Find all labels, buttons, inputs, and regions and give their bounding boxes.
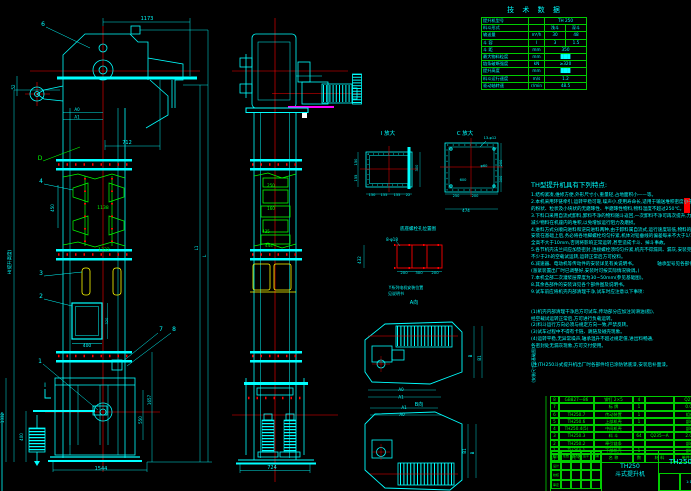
tech-cell: 1.5	[566, 39, 587, 46]
title-block-right: TH250 1:10	[659, 451, 691, 491]
label-dim-i-300: 300	[415, 164, 419, 172]
label-dim-1332-mid: 1332	[98, 247, 110, 253]
label-label-d: D	[38, 155, 43, 162]
label-dim-p1-b1: B1	[477, 355, 482, 361]
label-balloon-7: 7	[159, 326, 163, 333]
tech-cell: 输送量	[482, 32, 529, 39]
label-dim-435-side: 435	[262, 229, 270, 234]
tech-cell: mm	[529, 46, 545, 53]
parts-row: 6TH250.7传动装置1组件	[550, 411, 691, 418]
label-dim-p2-b: B	[470, 451, 475, 454]
label-dim-c-250: 250	[453, 194, 461, 198]
title-block-cell	[571, 470, 581, 480]
title-block-name: TH250 斗式提升机	[601, 451, 659, 491]
view-c-detail	[440, 138, 503, 209]
label-dim-c-200: 200	[472, 194, 480, 198]
parts-cell	[645, 425, 674, 432]
label-balloon-6: 6	[41, 21, 45, 28]
parts-cell: 4	[633, 396, 645, 403]
plan-view-a	[365, 322, 482, 397]
label-dim-c-200r: 200	[499, 159, 503, 167]
parts-cell: TH250.3	[559, 432, 594, 439]
label-dim-p2-a1: A1	[401, 405, 407, 410]
parts-cell: 中间机壳	[594, 425, 633, 432]
label-dim-712: 712	[122, 140, 132, 146]
note-line: 的粉状、粒状及小块状的无磨琢性、半磨琢性物料,物料温度不超过250℃。	[531, 207, 691, 214]
tech-cell: 350	[545, 46, 587, 53]
tech-cell: mm	[529, 68, 545, 75]
parts-cell: Q235—A	[645, 432, 674, 439]
title-block-cell	[571, 480, 581, 490]
parts-cell: 组件	[674, 411, 691, 418]
label-dim-p2-b1: B1	[462, 448, 467, 454]
title-block-cell	[581, 480, 591, 490]
parts-cell: 铆钉 2×5	[594, 396, 633, 403]
label-dim-h-total: H(提升高度)	[6, 249, 13, 274]
title-block-cell: 标记	[551, 451, 561, 461]
parts-cell: 2.06	[674, 432, 691, 439]
title-block-sub-cells: 1:10	[659, 473, 691, 491]
tech-cell: 斗 容	[482, 39, 529, 46]
label-dim-c-474: 474	[462, 208, 470, 213]
tech-row: 斗 容l31.5	[482, 39, 587, 46]
parts-cell: 7	[550, 403, 559, 410]
model-number: TH250	[602, 463, 658, 471]
label-dim-a0: A0	[74, 107, 80, 112]
label-dim-i-155a: 155	[381, 193, 388, 197]
parts-cell: 1	[633, 403, 645, 410]
title-block-cell: 日期	[591, 451, 601, 461]
tech-row: 驱动轴转速r/min48.5	[482, 82, 587, 89]
parts-cell: 料 斗	[594, 432, 633, 439]
parts-row: 7标 牌10.03	[550, 403, 691, 410]
label-dim-i-155l: 155	[354, 175, 358, 182]
parts-cell: GB827—86	[559, 396, 594, 403]
tech-cell	[529, 18, 545, 25]
label-dim-p1-b: B	[468, 354, 473, 357]
title-block-cell: 审定	[551, 480, 561, 490]
discharge-chute	[146, 80, 168, 128]
tech-row: 提升机型号TH 250	[482, 18, 587, 25]
title-block-cell	[591, 480, 601, 490]
parts-cell: TH250.6	[559, 418, 594, 425]
parts-cell	[633, 440, 645, 447]
notes-panel: TH型提升机具有下列特点: 1.结构紧凑,维修方便,外形尺寸小,重量轻,占地面积…	[531, 179, 691, 368]
parts-row: 3TH250.3料 斗64Q235—A2.06	[550, 432, 691, 439]
label-dim-52: 52	[11, 84, 16, 90]
label-balloon-8: 8	[172, 326, 176, 333]
label-dim-g-432: 432	[357, 256, 362, 264]
label-view-a-label: A向	[410, 299, 418, 306]
parts-row: 8GB827—86铆钉 2×54Q215	[550, 396, 691, 403]
title-block-cell: 处数	[561, 451, 571, 461]
label-note-13holes: 13-φ12	[484, 136, 497, 140]
label-motor-note-1: Y系列电机安装位置	[388, 284, 423, 290]
label-anchor-grid-title: 底座螺栓孔位置图	[400, 225, 436, 232]
tech-cell: 30	[545, 32, 566, 39]
tech-cell: 料斗运行速度	[482, 75, 529, 82]
tech-cell: m³/h	[529, 32, 545, 39]
label-dim-i-150: 150	[369, 193, 377, 197]
note-line: 8.其余各部件的安装详见各个部件图及说明书。	[531, 283, 691, 290]
label-section-i: I	[44, 382, 46, 389]
label-dim-320: 320	[105, 317, 109, 325]
title-block-cell: 更改文件号	[571, 451, 581, 461]
label-dim-c-300r: 300	[499, 175, 503, 183]
parts-cell: 0.03	[674, 403, 691, 410]
parts-cell: 部件	[674, 425, 691, 432]
tech-row: 料斗运行速度m/s1.2	[482, 75, 587, 82]
label-dim-1332-left: 1332	[0, 412, 5, 423]
title-block: 标记处数更改文件号签字日期设计校核审定 TH250 斗式提升机 TH250 1:…	[550, 450, 691, 491]
inspection-door	[72, 303, 102, 339]
tech-row: 提升高度mm███	[482, 68, 587, 75]
tech-cell: ███	[545, 68, 587, 75]
note-subline: 各密封处无漏灰现象,方可交付使用。	[531, 344, 691, 351]
side-elevation-view	[232, 18, 362, 482]
title-block-cell	[571, 461, 581, 471]
cad-canvas[interactable]: 61173A0A152D47124501138133232400320781I1…	[0, 0, 691, 491]
label-dim-c-600: 600	[460, 178, 468, 182]
machine-name: 斗式提升机	[602, 471, 658, 479]
parts-cell	[645, 396, 674, 403]
plan-view-b	[365, 408, 476, 490]
tech-cell: 深斗	[566, 25, 587, 32]
label-dim-i-155b: 155	[394, 193, 401, 197]
title-block-cell: 签字	[581, 451, 591, 461]
parts-cell: 64	[633, 432, 645, 439]
tech-cell: 驱动轴转速	[482, 82, 529, 89]
title-block-sub-cell: 1:10	[680, 473, 691, 491]
label-dim-l1: L1	[194, 245, 199, 250]
tech-data-table: 提升机型号TH 250料斗形式浅斗深斗输送量m³/h3048斗 容l31.5斗 …	[481, 17, 587, 90]
notes-subnotes: (1)机壳内部清理干净后方可试车,传动部分应加注润滑油(脂), 经空载试运转正常…	[531, 310, 691, 351]
tech-cell	[529, 25, 545, 32]
title-block-cell	[591, 470, 601, 480]
parts-cell	[645, 403, 674, 410]
tech-cell: 斗 距	[482, 46, 529, 53]
tech-table-title: 技 术 数 据	[481, 5, 589, 15]
label-dim-1138: 1138	[97, 205, 109, 211]
parts-cell: 部件	[674, 418, 691, 425]
label-dim-550: 550	[138, 416, 143, 424]
label-dim-i-22: 22	[406, 193, 411, 197]
label-dim-1173: 1173	[141, 16, 154, 22]
note-line: 减少物料在机座内的堆积,以免增加运行阻力及磨损。	[531, 221, 691, 228]
tech-cell: mm	[529, 54, 545, 61]
parts-cell	[559, 403, 594, 410]
title-block-cell: 校核	[551, 470, 561, 480]
bucket-yellow-right	[113, 268, 121, 295]
parts-cell: 3	[550, 432, 559, 439]
parts-cell: 传动装置	[594, 411, 633, 418]
tech-cell: 提升机型号	[482, 18, 529, 25]
notes-footnote: (注)TH250斗式提升机出厂时各部件均已涂防锈底漆,安装后补面漆。	[531, 362, 691, 368]
tech-cell: m/s	[529, 75, 545, 82]
title-block-cell	[581, 470, 591, 480]
label-balloon-1: 1	[38, 358, 42, 365]
parts-cell: 6	[550, 411, 559, 418]
tech-cell: 浅斗	[545, 25, 566, 32]
tech-cell: 48	[566, 32, 587, 39]
note-line: 2.本机采用环链牵引,运转平稳可靠,噪声小,使用寿命长,适用于输送堆积密度小于1…	[531, 200, 691, 207]
parts-cell: 上部机壳	[594, 418, 633, 425]
drawing-number: TH250	[659, 451, 691, 473]
label-balloon-3: 3	[39, 270, 43, 277]
tech-row: 链条破断强度kN≥320	[482, 61, 587, 68]
tech-cell: kN	[529, 61, 545, 68]
tech-data-panel: 技 术 数 据 提升机型号TH 250料斗形式浅斗深斗输送量m³/h3048斗 …	[481, 5, 589, 90]
parts-cell: 4	[550, 425, 559, 432]
tech-cell: TH 250	[545, 18, 587, 25]
parts-cell	[633, 425, 645, 432]
label-dim-l: L	[202, 254, 208, 257]
tech-cell: l	[529, 39, 545, 46]
parts-row: 2TH250.2牵引链条部件	[550, 440, 691, 447]
notes-title: TH型提升机具有下列特点:	[531, 179, 691, 189]
bucket-chain-section	[63, 174, 125, 247]
label-motor-note-2: 见说明书	[388, 290, 404, 296]
note-line: 9.试车前应将机壳内部清理干净,试车时应注意以下事项:	[531, 290, 691, 297]
label-note-8holes: 8-φ18	[386, 237, 398, 242]
label-dim-250-side: 250	[267, 183, 275, 188]
title-block-cell	[591, 461, 601, 471]
label-dim-444-side: 444	[265, 243, 273, 248]
title-block-revision-grid: 标记处数更改文件号签字日期设计校核审定	[551, 451, 601, 491]
parts-row: 4TH250.4(5)中间机壳部件	[550, 425, 691, 432]
label-dim-1544: 1544	[95, 466, 108, 472]
label-dim-g-200a: 200	[400, 270, 408, 275]
tech-cell: 48.5	[545, 82, 587, 89]
parts-cell: 8	[550, 396, 559, 403]
parts-cell: 1	[633, 418, 645, 425]
parts-cell: 2	[550, 440, 559, 447]
label-dim-i-150l: 150	[354, 158, 358, 166]
counterweight	[29, 415, 45, 466]
title-block-cell	[561, 480, 571, 490]
label-dim-1657: 1657	[147, 394, 152, 405]
parts-cell: 牵引链条	[594, 440, 633, 447]
tech-row: 输送量m³/h3048	[482, 32, 587, 39]
label-balloon-4: 4	[39, 178, 43, 185]
label-dim-724: 724	[267, 465, 277, 471]
tech-cell: r/min	[529, 82, 545, 89]
tech-cell: 3	[545, 39, 566, 46]
note-line: (涨紧装置出厂时已调整好,安装时可按实际情况微调。)	[531, 269, 691, 276]
parts-cell	[645, 440, 674, 447]
detail-i-view	[358, 146, 420, 194]
label-dim-c-phi: φ60	[481, 164, 489, 168]
tech-cell: ≥320	[545, 61, 587, 68]
parts-cell: 部件	[674, 440, 691, 447]
title-block-cell: 设计	[551, 461, 561, 471]
parts-row: 5TH250.6上部机壳1部件	[550, 418, 691, 425]
label-dim-a1: A1	[74, 115, 80, 120]
title-block-cell	[561, 470, 571, 480]
drive-motor	[288, 74, 362, 107]
note-line: 6.减速器、电动机等传动件的安装详见有关说明书。 轴承型号见各部件图。	[531, 262, 691, 269]
label-dim-p1-a0: A0	[398, 387, 404, 392]
note-line: 3.下料口采用自流式卸料,卸料不净的物料随斗返回,一次卸料不净可再次提升,力求	[531, 214, 691, 221]
tech-cell: 1.2	[545, 75, 587, 82]
tech-cell: 最大物料粒度	[482, 54, 529, 61]
label-dim-g-300: 300	[415, 270, 423, 275]
parts-cell: TH250.7	[559, 411, 594, 418]
parts-cell	[645, 418, 674, 425]
tech-row: 斗 距mm350	[482, 46, 587, 53]
notes-lines: 1.结构紧凑,维修方便,外形尺寸小,重量轻,占地面积小——等。2.本机采用环链牵…	[531, 193, 691, 297]
tech-cell: 链条破断强度	[482, 61, 529, 68]
label-detail-i-title: I 放大	[381, 129, 396, 137]
tech-cell: 提升高度	[482, 68, 529, 75]
title-block-cell	[581, 461, 591, 471]
parts-cell: 1	[633, 411, 645, 418]
label-balloon-2: 2	[39, 293, 43, 300]
title-block-sub-cell	[659, 473, 680, 491]
front-elevation-view	[6, 18, 212, 472]
label-view-c-title: C 放大	[457, 129, 474, 137]
parts-cell: TH250.2	[559, 440, 594, 447]
white-marker	[302, 113, 307, 118]
parts-cell: TH250.4(5)	[559, 425, 594, 432]
dimension-labels: 61173A0A152D47124501138133232400320781I1…	[0, 16, 536, 472]
bucket-yellow-left	[82, 268, 90, 295]
parts-cell: Q215	[674, 396, 691, 403]
label-view-b-label: B向	[415, 401, 423, 408]
label-dim-p2-a0: A0	[399, 412, 405, 417]
label-dim-400-left: 400	[19, 433, 24, 441]
parts-rows: 8GB827—86铆钉 2×54Q2157标 牌10.036TH250.7传动装…	[550, 396, 691, 454]
tech-row: 料斗形式浅斗深斗	[482, 25, 587, 32]
parts-cell: 5	[550, 418, 559, 425]
parts-cell	[645, 411, 674, 418]
label-dim-160-side: 160	[267, 206, 275, 211]
label-dim-p1-a1: A1	[398, 395, 404, 400]
tech-cell: 料斗形式	[482, 25, 529, 32]
note-subline: (1)机壳内部清理干净后方可试车,传动部分应加注润滑油(脂),	[531, 310, 691, 317]
anchor-bolt-grid	[364, 241, 445, 272]
boot-section	[33, 378, 135, 455]
tech-cell: ███	[545, 54, 587, 61]
note-line: 7.本机全部二次灌浆层厚度为30~50mm(参见基础图)。	[531, 276, 691, 283]
note-line: 1.结构紧凑,维修方便,外形尺寸小,重量轻,占地面积小——等。	[531, 193, 691, 200]
tech-row: 最大物料粒度mm███	[482, 54, 587, 61]
label-dim-400-door: 400	[83, 343, 92, 349]
title-block-cell	[561, 461, 571, 471]
label-dim-g-200b: 200	[431, 270, 439, 275]
parts-cell: 标 牌	[594, 403, 633, 410]
label-dim-450: 450	[50, 204, 55, 212]
